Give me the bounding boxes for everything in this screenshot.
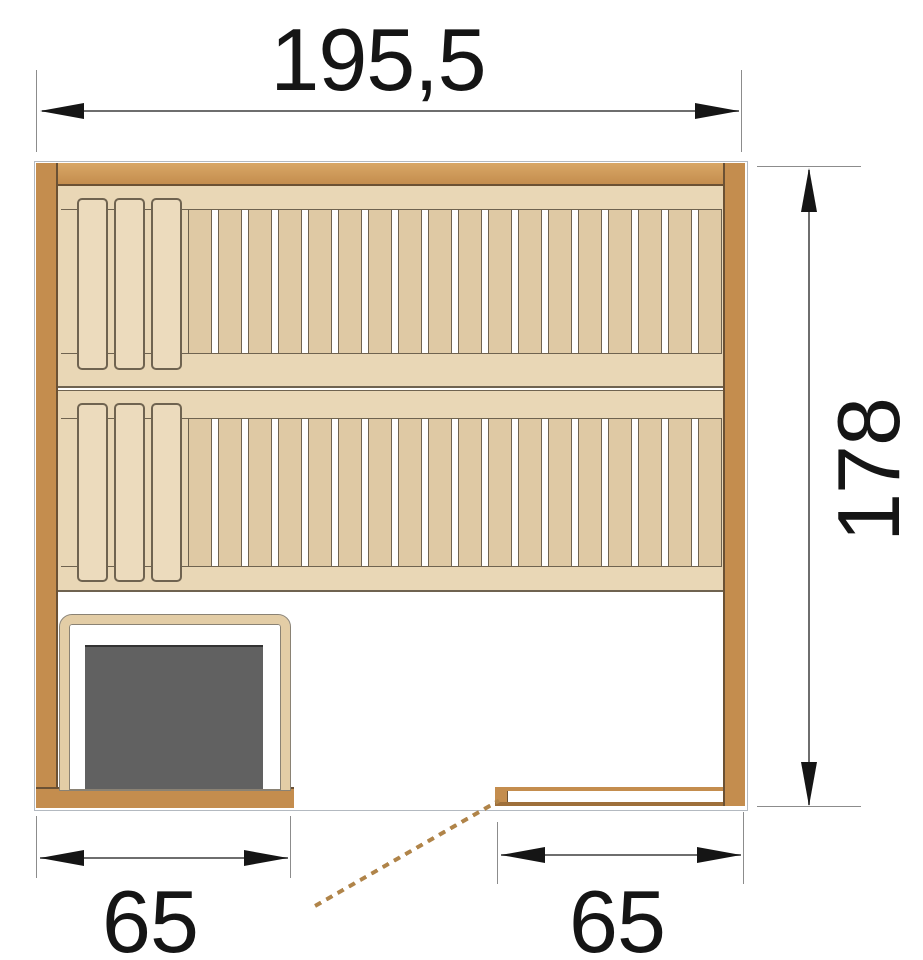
bench-headrest-slat [151, 198, 182, 370]
bench-seat-slat [488, 210, 512, 353]
dim-width-arrow-right-icon [695, 103, 739, 119]
bench-seat-slat [248, 419, 272, 566]
wall-left [36, 163, 58, 808]
bench-headrest-slat [77, 198, 108, 370]
bench-seat-slat [368, 419, 392, 566]
bench-seat-slat [428, 210, 452, 353]
bench-seat-slat [248, 210, 272, 353]
lower-bench-seat-slats [188, 418, 722, 567]
bench-seat-slat [308, 419, 332, 566]
upper-bench-seat-slats [188, 209, 722, 354]
bench-headrest-slat [114, 198, 145, 370]
bench-seat-slat [338, 210, 362, 353]
dim-bl-ext-right [290, 816, 291, 878]
bench-seat-slat [548, 419, 572, 566]
wall-bottom-left [36, 787, 294, 808]
upper-bench-headrest-slats [77, 198, 182, 370]
bench-seat-slat [278, 419, 302, 566]
bench-seat-slat [218, 419, 242, 566]
bench-seat-slat [398, 419, 422, 566]
bench-seat-slat [578, 419, 602, 566]
lower-bench-headrest-slats [77, 403, 182, 582]
bench-seat-slat [668, 210, 692, 353]
bench-seat-slat [428, 419, 452, 566]
bench-seat-slat [668, 419, 692, 566]
dim-width-ext-right [741, 70, 742, 152]
bench-seat-slat [608, 419, 632, 566]
dim-height-ext-top [757, 166, 861, 167]
dim-width-ext-left [36, 70, 37, 152]
dim-width-arrow-left-icon [40, 103, 84, 119]
bench-seat-slat [578, 210, 602, 353]
dim-height-arrow-down-icon [801, 762, 817, 806]
bench-seat-slat [488, 419, 512, 566]
dim-br-ext-left [497, 822, 498, 884]
bench-seat-slat [278, 210, 302, 353]
dim-br-ext-right [743, 812, 744, 884]
upper-bench [58, 186, 723, 388]
wall-right [723, 163, 745, 806]
bench-seat-slat [608, 210, 632, 353]
dim-bl-arrow-right-icon [244, 850, 288, 866]
dim-height-ext-bottom [757, 806, 861, 807]
wall-top [36, 163, 745, 186]
bench-seat-slat [698, 210, 722, 353]
bench-seat-slat [188, 419, 212, 566]
bench-seat-slat [368, 210, 392, 353]
bench-seat-slat [518, 210, 542, 353]
dim-width-label: 195,5 [228, 16, 528, 104]
lower-bench [58, 390, 723, 592]
heater [85, 645, 263, 789]
bench-headrest-slat [77, 403, 108, 582]
bench-seat-slat [548, 210, 572, 353]
front-glass-panel [495, 787, 723, 806]
bench-seat-slat [638, 419, 662, 566]
dim-height-line [808, 170, 810, 805]
bench-seat-slat [518, 419, 542, 566]
dim-bottom-right-label: 65 [542, 878, 692, 960]
door-swing-dashed-line [314, 799, 500, 908]
sauna-plan-drawing: 195,5 178 65 65 [0, 0, 923, 960]
dim-bottom-left-label: 65 [75, 878, 225, 960]
bench-seat-slat [188, 210, 212, 353]
dim-width-line [42, 110, 739, 112]
bench-seat-slat [338, 419, 362, 566]
bench-seat-slat [638, 210, 662, 353]
bench-headrest-slat [114, 403, 145, 582]
bench-seat-slat [218, 210, 242, 353]
bench-seat-slat [458, 210, 482, 353]
bench-seat-slat [458, 419, 482, 566]
dim-height-arrow-up-icon [801, 168, 817, 212]
dim-height-label: 178 [824, 370, 914, 570]
bench-seat-slat [308, 210, 332, 353]
bench-headrest-slat [151, 403, 182, 582]
dim-br-arrow-right-icon [697, 847, 741, 863]
dim-br-arrow-left-icon [501, 847, 545, 863]
dim-bl-ext-left [36, 816, 37, 878]
bench-seat-slat [698, 419, 722, 566]
bench-seat-slat [398, 210, 422, 353]
dim-bl-arrow-left-icon [40, 850, 84, 866]
